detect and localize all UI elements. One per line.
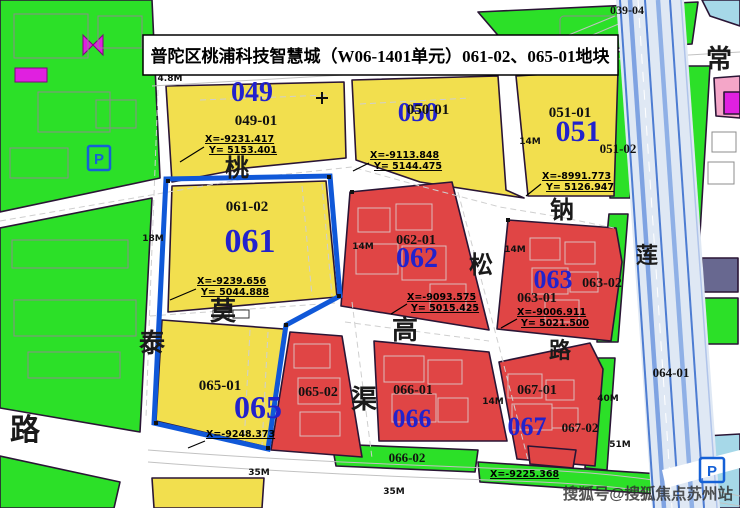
parcel-sub-039-04: 039-04 <box>610 3 644 17</box>
coord-063-y: Y= 5021.500 <box>520 318 589 329</box>
parcel-sub-051-02: 051-02 <box>600 141 637 156</box>
parcel-number-051: 051 <box>556 115 601 148</box>
corner-mark <box>166 179 170 183</box>
water-ne <box>702 0 740 26</box>
title-box: 普陀区桃浦科技智慧城（W06-1401单元）061-02、065-01地块 <box>143 35 618 75</box>
coord-063-x: X=-9006.911 <box>517 307 586 318</box>
parcel-number-049: 049 <box>231 77 273 108</box>
coord-051-y: Y= 5126.947 <box>545 182 614 193</box>
leader-line <box>188 441 205 448</box>
gray-block-east <box>702 258 738 292</box>
dim-14m-3: 14M <box>504 245 526 255</box>
corner-mark <box>350 190 354 194</box>
parcel-number-066: 066 <box>393 404 432 433</box>
dim-35m-2: 35M <box>383 487 405 497</box>
coord-051-x: X=-8991.773 <box>542 171 611 182</box>
parcel-050 <box>352 76 524 198</box>
dim-51m: 51M <box>609 440 631 450</box>
road-char-qu: 渠 <box>351 385 377 414</box>
dim-14m-2: 14M <box>352 242 374 252</box>
corner-mark <box>337 294 341 298</box>
parcel-sub-067-01: 067-01 <box>517 383 557 398</box>
parcel-sub-065-02: 065-02 <box>298 385 338 400</box>
building-outline <box>712 132 736 152</box>
parcel-number-063: 063 <box>534 265 573 294</box>
dim-18m: 18M <box>142 234 164 244</box>
parcel-red-south <box>528 446 576 468</box>
road-char-mo: 莫 <box>210 297 237 326</box>
parcel-number-062: 062 <box>396 243 438 274</box>
road-char-na: 钠 <box>550 197 574 224</box>
corner-mark <box>284 323 288 327</box>
coord-062-y: Y= 5015.425 <box>410 303 479 314</box>
road-char-tai: 泰 <box>139 329 166 358</box>
dim-14m-1: 14M <box>519 137 541 147</box>
road-char-lu-mid: 路 <box>549 338 572 363</box>
dim-40m: 40M <box>597 394 619 404</box>
parking-letter: P <box>707 463 717 480</box>
parcel-sub-066-01: 066-01 <box>393 383 433 398</box>
corner-mark <box>506 218 510 222</box>
magenta-block-east <box>724 92 740 114</box>
coord-050-y: Y= 5144.475 <box>373 161 442 172</box>
parcel-sub-061-02: 061-02 <box>226 199 269 215</box>
parcel-yellow-south <box>152 478 264 508</box>
map-stage: P P 049 049-01 050 050-01 051-01 051 051… <box>0 0 740 508</box>
coord-061-x: X=-9239.656 <box>197 276 266 287</box>
dim-35m-1: 35M <box>248 468 270 478</box>
corner-mark <box>266 446 270 450</box>
green-zone-sw <box>0 456 120 508</box>
road-char-song: 松 <box>469 252 493 279</box>
map-title: 普陀区桃浦科技智慧城（W06-1401单元）061-02、065-01地块 <box>151 46 611 66</box>
parking-letter: P <box>94 151 104 168</box>
green-zone-w <box>0 198 152 432</box>
parcel-number-061: 061 <box>225 223 276 260</box>
road-char-lu-sw: 路 <box>10 414 41 447</box>
green-block-east <box>704 298 738 344</box>
parcel-sub-050-01: 050-01 <box>407 102 450 118</box>
zoning-map: P P 049 049-01 050 050-01 051-01 051 051… <box>0 0 740 508</box>
road-char-chang: 常 <box>706 45 732 74</box>
magenta-block-nw <box>15 68 47 82</box>
parcel-sub-064-01: 064-01 <box>653 365 690 380</box>
coord-065-x: X=-9248.373 <box>206 429 275 440</box>
parcel-sub-049-01: 049-01 <box>235 113 278 129</box>
coord-049-x: X=-9231.417 <box>205 134 274 145</box>
parcel-sub-063-01: 063-01 <box>517 291 557 306</box>
parcel-number-067: 067 <box>508 412 547 441</box>
coord-062-x: X=-9093.575 <box>407 292 476 303</box>
coord-066-x: X=-9225.368 <box>490 469 559 480</box>
road-char-tao: 桃 <box>225 155 249 182</box>
coord-049-y: Y= 5153.401 <box>208 145 277 156</box>
road-char-lian: 莲 <box>636 243 658 268</box>
parcel-sub-067-02: 067-02 <box>562 420 599 435</box>
parcel-sub-066-02: 066-02 <box>389 450 426 465</box>
corner-mark <box>327 175 331 179</box>
corner-mark <box>154 421 158 425</box>
watermark: 搜狐号@搜狐焦点苏州站 <box>563 484 734 503</box>
coord-050-x: X=-9113.848 <box>370 150 439 161</box>
road-char-gao: 高 <box>392 315 418 345</box>
parcel-number-065: 065 <box>234 389 282 425</box>
dim-14m-4: 14M <box>482 397 504 407</box>
parcel-sub-063-02: 063-02 <box>582 276 622 291</box>
building-outline <box>708 162 734 184</box>
